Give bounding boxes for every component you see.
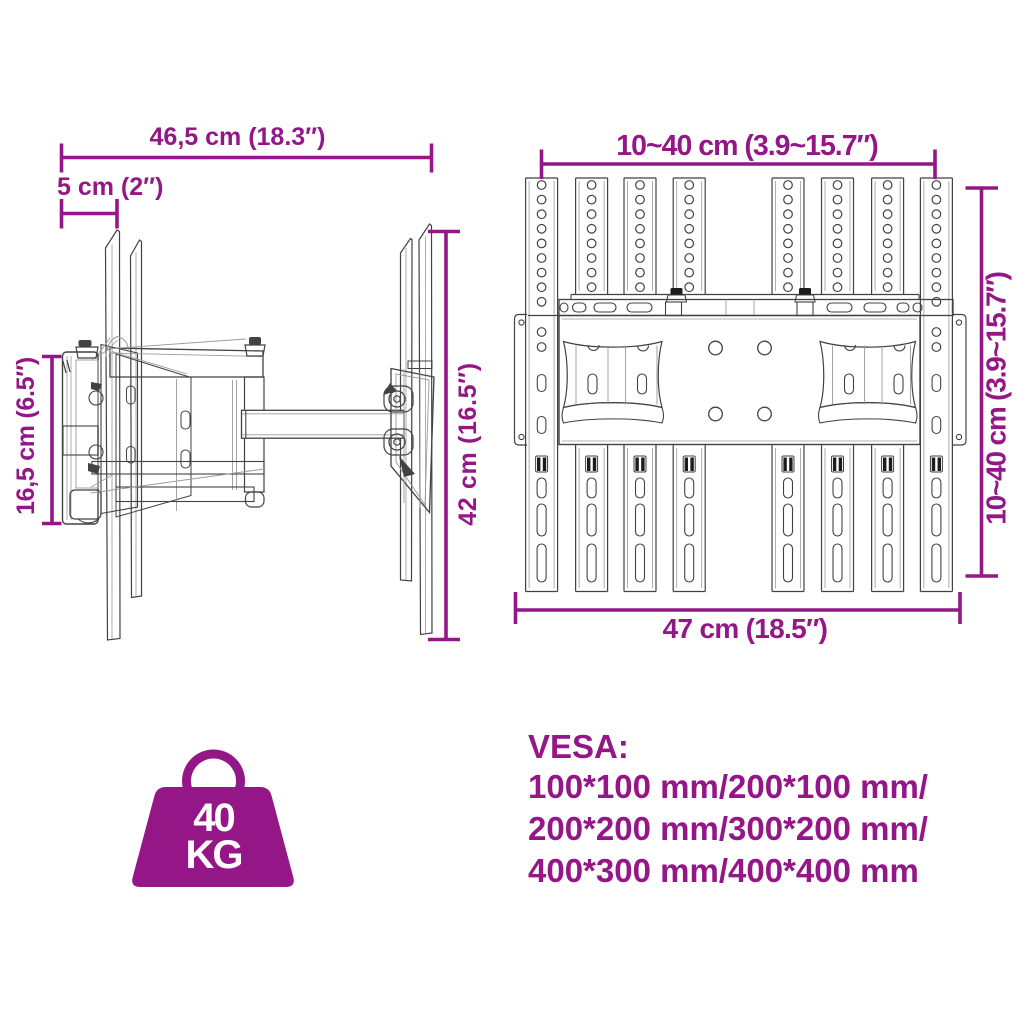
svg-text:400*300 mm/400*400 mm: 400*300 mm/400*400 mm — [528, 852, 919, 889]
svg-text:16,5 cm (6.5″): 16,5 cm (6.5″) — [12, 357, 40, 515]
svg-text:5 cm (2″): 5 cm (2″) — [57, 173, 163, 201]
svg-text:10~40 cm (3.9~15.7″): 10~40 cm (3.9~15.7″) — [616, 130, 878, 162]
svg-text:100*100 mm/200*100 mm/: 100*100 mm/200*100 mm/ — [528, 768, 928, 805]
svg-text:VESA:: VESA: — [528, 728, 629, 765]
svg-text:47 cm (18.5″): 47 cm (18.5″) — [663, 613, 828, 644]
svg-text:42 cm (16.5″): 42 cm (16.5″) — [454, 362, 482, 526]
svg-text:KG: KG — [186, 833, 242, 877]
svg-text:46,5 cm (18.3″): 46,5 cm (18.3″) — [150, 123, 326, 151]
svg-text:200*200 mm/300*200 mm/: 200*200 mm/300*200 mm/ — [528, 810, 928, 847]
svg-text:10~40 cm (3.9~15.7″): 10~40 cm (3.9~15.7″) — [981, 272, 1012, 525]
